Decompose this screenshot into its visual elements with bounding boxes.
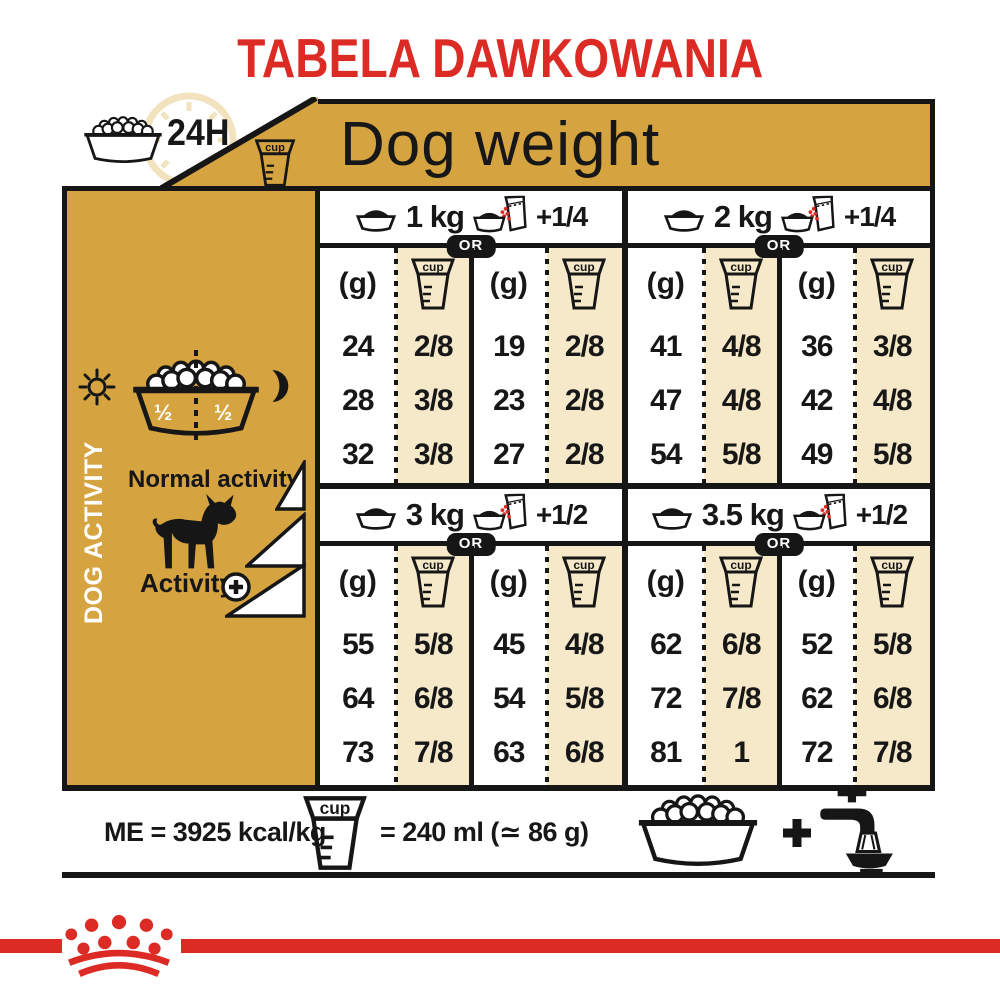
cup-column-alt: 4/8 5/8 6/8 [547, 546, 623, 785]
activity-level-triangle-3 [225, 562, 306, 618]
cup-icon [870, 248, 914, 320]
cup-column: 5/8 6/8 7/8 [396, 546, 472, 785]
cup-icon [719, 248, 763, 320]
weight-label: 2 kg [714, 199, 772, 235]
bowl-pouch-icon [793, 493, 847, 537]
grams-value: 54 [493, 672, 524, 726]
weight-group-3-5kg: 3.5 kg +1/2 OR (g) 62 72 81 6/8 7/8 1 (g… [628, 489, 930, 785]
half-portion-left: ½ [154, 400, 172, 426]
cup-value: 1 [733, 726, 749, 780]
cup-column: 6/8 7/8 1 [704, 546, 780, 785]
weight-group-header: 2 kg +1/4 OR [628, 191, 930, 248]
metabolizable-energy-label: ME = 3925 kcal/kg [104, 817, 326, 848]
activity-level-triangle-1 [275, 460, 306, 511]
bowl-pouch-icon [473, 195, 527, 239]
cup-column: 2/8 3/8 3/8 [396, 248, 472, 483]
cup-value: 4/8 [565, 618, 604, 672]
footer-top-border [62, 785, 935, 791]
cup-value: 6/8 [414, 672, 453, 726]
option-divider [469, 248, 474, 483]
brand-bar-right [181, 939, 1000, 953]
weight-group-header: 1 kg +1/4 OR [320, 191, 622, 248]
weight-group-3kg: 3 kg +1/2 OR (g) 55 64 73 5/8 6/8 7/8 (g… [320, 489, 622, 785]
extra-portion-label: +1/2 [856, 499, 907, 531]
weight-group-1kg: 1 kg +1/4 OR (g) 24 28 32 2/8 3/8 3/8 (g… [320, 191, 622, 483]
grams-value: 28 [342, 374, 373, 428]
cup-value: 5/8 [873, 618, 912, 672]
cup-value: 4/8 [873, 374, 912, 428]
grams-value: 42 [801, 374, 832, 428]
bowl-pouch-icon [781, 195, 835, 239]
extra-portion-label: +1/4 [536, 201, 587, 233]
grams-value: 32 [342, 428, 373, 482]
grams-value: 41 [650, 320, 681, 374]
cup-value: 4/8 [722, 374, 761, 428]
grams-column-alt: (g) 52 62 72 [779, 546, 855, 785]
table-left-border [62, 191, 67, 790]
dog-weight-label: Dog weight [340, 109, 660, 180]
cup-value: 4/8 [722, 320, 761, 374]
cup-value: 2/8 [565, 428, 604, 482]
cup-column-alt: 5/8 6/8 7/8 [855, 546, 931, 785]
cup-value: 7/8 [873, 726, 912, 780]
day-night-divider [194, 350, 198, 446]
footer-bottom-border [62, 872, 935, 878]
half-portion-right: ½ [214, 400, 232, 426]
bowl-icon [651, 501, 693, 530]
grams-value: 45 [493, 618, 524, 672]
grams-value: 49 [801, 428, 832, 482]
weight-label: 1 kg [406, 199, 464, 235]
cup-icon [411, 248, 455, 320]
grams-column-alt: (g) 45 54 63 [471, 546, 547, 785]
option-divider [469, 546, 474, 785]
cup-value: 5/8 [565, 672, 604, 726]
bowl-pouch-icon [473, 493, 527, 537]
bowl-icon [355, 501, 397, 530]
cup-column: 4/8 4/8 5/8 [704, 248, 780, 483]
grams-value: 36 [801, 320, 832, 374]
page-title: TABELA DAWKOWANIA [0, 26, 1000, 90]
grams-value: 63 [493, 726, 524, 780]
moon-icon [263, 368, 293, 404]
page-title-text: TABELA DAWKOWANIA [237, 26, 763, 90]
cup-equivalence-label: = 240 ml (≃ 86 g) [380, 817, 588, 848]
cup-value: 6/8 [873, 672, 912, 726]
cup-value: 6/8 [722, 618, 761, 672]
grams-column-alt: (g) 19 23 27 [471, 248, 547, 483]
brand-bar-left [0, 939, 62, 953]
extra-portion-label: +1/4 [844, 201, 895, 233]
bowl-icon [355, 203, 397, 232]
grams-value: 52 [801, 618, 832, 672]
grams-column-alt: (g) 36 42 49 [779, 248, 855, 483]
grams-value: 62 [650, 618, 681, 672]
cup-icon [562, 248, 606, 320]
cup-value: 3/8 [414, 374, 453, 428]
footer-food-bowl-icon [632, 791, 764, 872]
cup-value: 5/8 [873, 428, 912, 482]
grams-value: 72 [650, 672, 681, 726]
cup-value: 2/8 [565, 320, 604, 374]
chihuahua-icon [148, 492, 240, 572]
table-right-border [930, 99, 935, 790]
wedge-cup-icon [252, 138, 298, 188]
grams-value: 19 [493, 320, 524, 374]
grams-unit-label: (g) [339, 248, 377, 320]
cup-value: 2/8 [414, 320, 453, 374]
grams-unit-label: (g) [339, 546, 377, 618]
grams-value: 73 [342, 726, 373, 780]
bowl-icon [663, 203, 705, 232]
grams-column: (g) 24 28 32 [320, 248, 396, 483]
grams-value: 81 [650, 726, 681, 780]
grams-value: 72 [801, 726, 832, 780]
cup-value: 7/8 [722, 672, 761, 726]
royal-canin-crown-logo [62, 912, 176, 979]
option-divider [777, 248, 782, 483]
cup-icon [870, 546, 914, 618]
grams-value: 64 [342, 672, 373, 726]
grams-unit-label: (g) [647, 546, 685, 618]
cup-value: 5/8 [414, 618, 453, 672]
cup-icon [719, 546, 763, 618]
grams-unit-label: (g) [490, 248, 528, 320]
weight-group-header: 3 kg +1/2 OR [320, 489, 622, 546]
grams-unit-label: (g) [490, 546, 528, 618]
grams-column: (g) 55 64 73 [320, 546, 396, 785]
cup-icon [562, 546, 606, 618]
weight-group-header: 3.5 kg +1/2 OR [628, 489, 930, 546]
grams-value: 54 [650, 428, 681, 482]
grams-unit-label: (g) [798, 546, 836, 618]
dog-activity-vertical-label: DOG ACTIVITY [80, 456, 109, 624]
grams-column: (g) 62 72 81 [628, 546, 704, 785]
grams-value: 47 [650, 374, 681, 428]
plus-icon [780, 816, 814, 850]
sun-icon [74, 362, 120, 410]
water-tap-icon [815, 786, 893, 874]
weight-label: 3.5 kg [702, 497, 784, 533]
cup-icon [411, 546, 455, 618]
extra-portion-label: +1/2 [536, 499, 587, 531]
weight-label: 3 kg [406, 497, 464, 533]
cup-value: 6/8 [565, 726, 604, 780]
daily-ration-bowl-icon [80, 114, 166, 167]
activity-level-triangle-2 [245, 512, 306, 568]
grams-unit-label: (g) [647, 248, 685, 320]
cup-value: 3/8 [414, 428, 453, 482]
grams-value: 62 [801, 672, 832, 726]
cup-column-alt: 2/8 2/8 2/8 [547, 248, 623, 483]
cup-column-alt: 3/8 4/8 5/8 [855, 248, 931, 483]
grams-column: (g) 41 47 54 [628, 248, 704, 483]
grams-value: 24 [342, 320, 373, 374]
option-divider [777, 546, 782, 785]
grams-value: 27 [493, 428, 524, 482]
cup-value: 5/8 [722, 428, 761, 482]
weight-group-2kg: 2 kg +1/4 OR (g) 41 47 54 4/8 4/8 5/8 (g… [628, 191, 930, 483]
grams-value: 23 [493, 374, 524, 428]
cup-value: 7/8 [414, 726, 453, 780]
grams-unit-label: (g) [798, 248, 836, 320]
grams-value: 55 [342, 618, 373, 672]
cup-value: 2/8 [565, 374, 604, 428]
footer-cup-icon [299, 794, 371, 872]
cup-value: 3/8 [873, 320, 912, 374]
